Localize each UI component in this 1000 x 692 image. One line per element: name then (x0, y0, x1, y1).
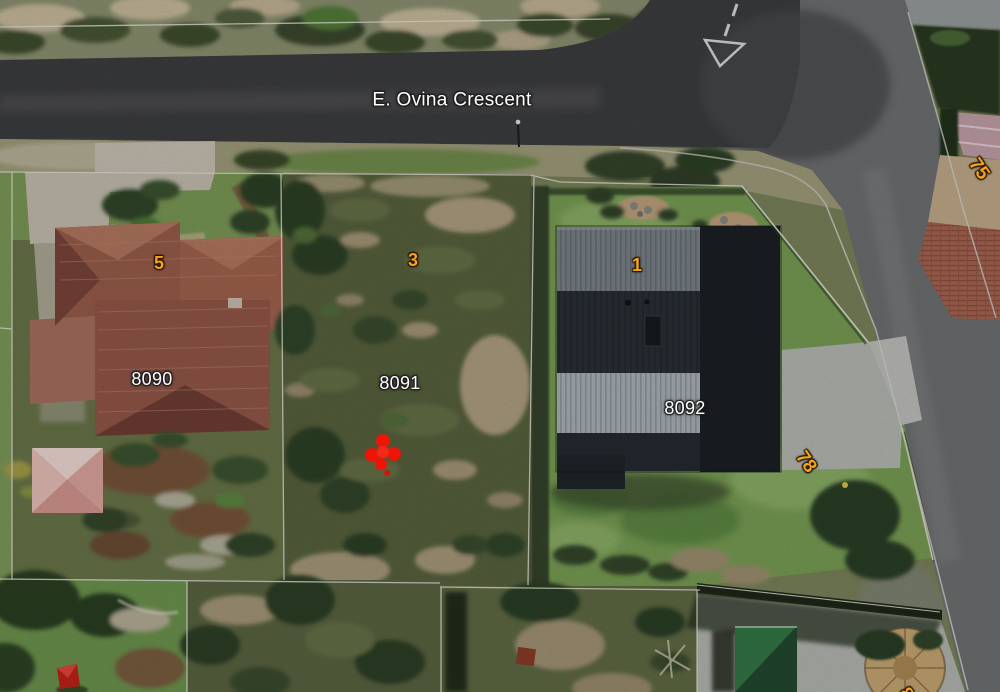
grain-overlay (0, 0, 1000, 692)
red-location-marker[interactable] (360, 431, 406, 481)
satellite-imagery (0, 0, 1000, 692)
aerial-map[interactable]: E. Ovina Crescent 8090 8091 8092 5 3 1 7… (0, 0, 1000, 692)
